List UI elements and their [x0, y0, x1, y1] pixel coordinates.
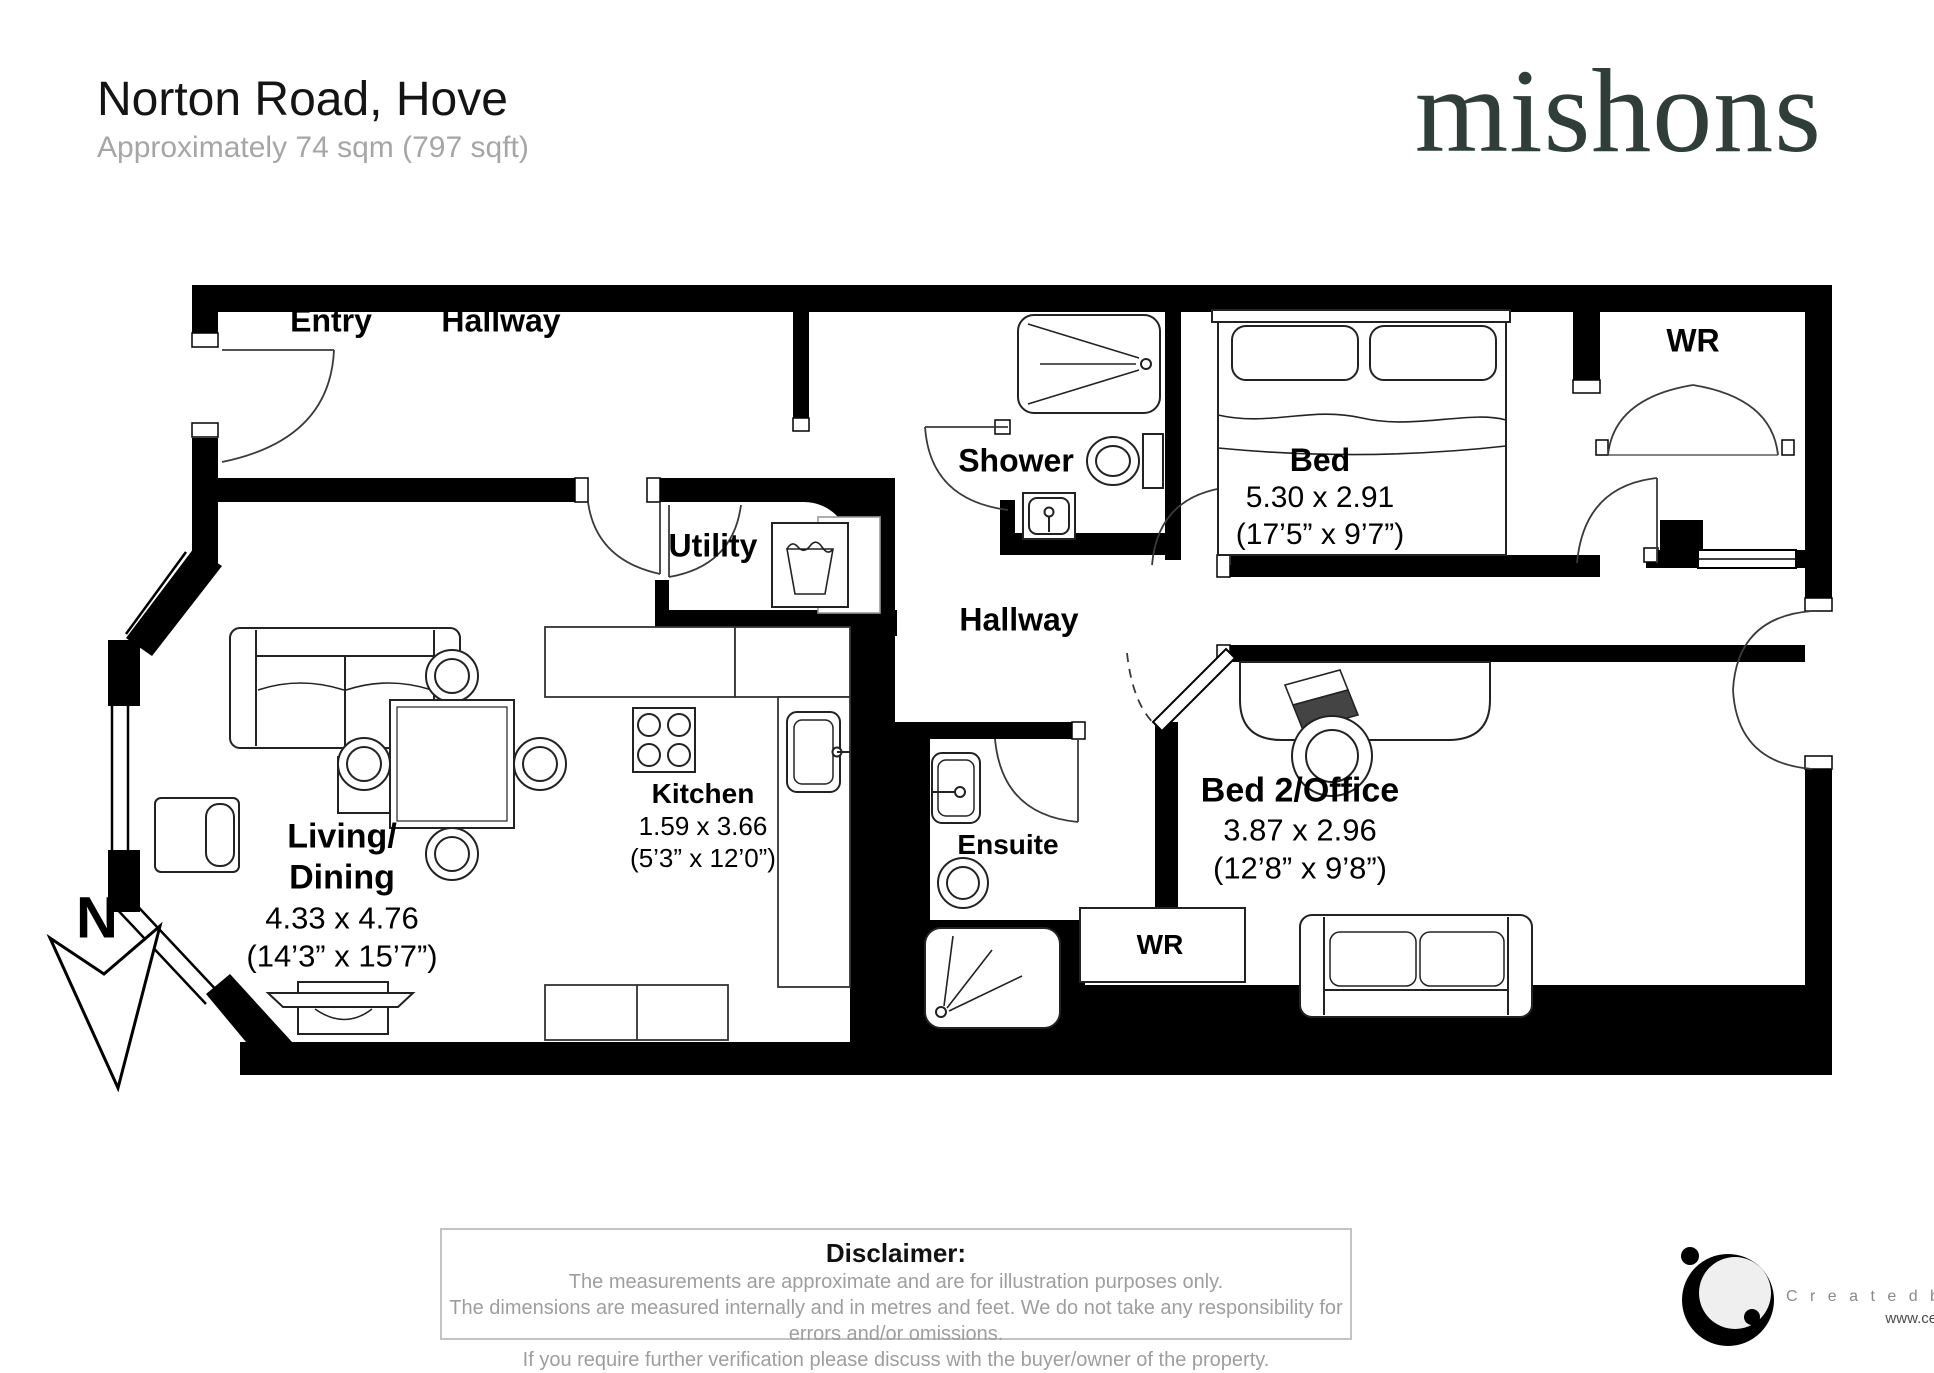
brand-logo: mishons	[1415, 42, 1822, 180]
living-dim-imperial: (14’3” x 15’7”)	[246, 937, 437, 975]
french-doors-right	[1733, 611, 1812, 769]
bed2-door-leaf	[1153, 649, 1235, 731]
room-label-bed2: Bed 2/Office 3.87 x 2.96 (12’8” x 9’8”)	[1201, 770, 1399, 887]
floorplan-canvas	[0, 0, 1934, 1367]
ensuite-door	[995, 739, 1078, 822]
sofa2-icon	[1300, 915, 1532, 1017]
room-label-ensuite: Ensuite	[957, 828, 1058, 862]
living-door	[588, 502, 660, 574]
armchair-icon	[155, 798, 239, 872]
desk-icon	[1240, 662, 1490, 740]
room-label-hallway2: Hallway	[959, 600, 1078, 639]
front-door	[222, 350, 334, 462]
washing-machine-icon	[772, 517, 880, 613]
room-label-wr-bottom: WR	[1137, 928, 1184, 962]
toilet-icon-shower	[1087, 434, 1163, 488]
kitchen-sink-icon	[787, 712, 850, 792]
room-label-utility: Utility	[669, 526, 758, 565]
room-label-entry: Entry	[290, 301, 372, 340]
bed-name: Bed	[1236, 441, 1404, 480]
room-label-wr-top: WR	[1666, 321, 1719, 360]
kitchen-dim-metric: 1.59 x 3.66	[630, 811, 776, 843]
room-label-bed: Bed 5.30 x 2.91 (17’5” x 9’7”)	[1236, 441, 1404, 553]
room-label-hallway: Hallway	[441, 301, 560, 340]
bed2-dim-imperial: (12’8” x 9’8”)	[1201, 850, 1399, 888]
shower-tray-icon-ensuite	[925, 928, 1060, 1028]
living-dim-metric: 4.33 x 4.76	[246, 900, 437, 938]
bed2-dim-metric: 3.87 x 2.96	[1201, 812, 1399, 850]
living-name-2: Dining	[246, 858, 437, 899]
disclaimer-line-3: If you require further verification plea…	[442, 1347, 1350, 1373]
wr-double-doors	[1608, 385, 1778, 455]
room-label-shower: Shower	[958, 441, 1074, 480]
disclaimer-title: Disclaimer:	[442, 1238, 1350, 1269]
sink-icon-ensuite	[932, 753, 980, 823]
credits: C r e a t e d b y C E N E S www.cenes.co	[1786, 1288, 1934, 1327]
bed2-open-door	[1127, 653, 1159, 728]
living-name-1: Living/	[246, 817, 437, 858]
kitchen-dim-imperial: (5’3” x 12’0”)	[630, 843, 776, 875]
credits-url: www.cenes.co	[1786, 1310, 1934, 1327]
shower-tray-icon	[1018, 315, 1160, 413]
hob-icon	[633, 708, 695, 772]
lobby-window	[1698, 550, 1796, 568]
disclaimer-line-2: The dimensions are measured internally a…	[442, 1295, 1350, 1347]
credits-created-by: C r e a t e d b y C E N E S	[1786, 1288, 1934, 1306]
compass-north-label: N	[76, 885, 118, 952]
bed-dim-metric: 5.30 x 2.91	[1236, 480, 1404, 517]
kitchen-name: Kitchen	[630, 777, 776, 811]
page-subtitle: Approximately 74 sqm (797 sqft)	[97, 131, 529, 165]
room-label-living: Living/ Dining 4.33 x 4.76 (14’3” x 15’7…	[246, 817, 437, 976]
bed2-name: Bed 2/Office	[1201, 770, 1399, 811]
disclaimer-line-1: The measurements are approximate and are…	[442, 1269, 1350, 1295]
disclaimer-box: Disclaimer: The measurements are approxi…	[440, 1228, 1352, 1340]
tv-unit-icon	[268, 982, 413, 1034]
sink-icon-shower	[1023, 493, 1075, 539]
room-label-kitchen: Kitchen 1.59 x 3.66 (5’3” x 12’0”)	[630, 777, 776, 875]
cenes-logo-icon	[1681, 1247, 1774, 1346]
toilet-icon-ensuite	[938, 858, 988, 908]
page-title: Norton Road, Hove	[97, 72, 529, 127]
bed-dim-imperial: (17’5” x 9’7”)	[1236, 517, 1404, 554]
